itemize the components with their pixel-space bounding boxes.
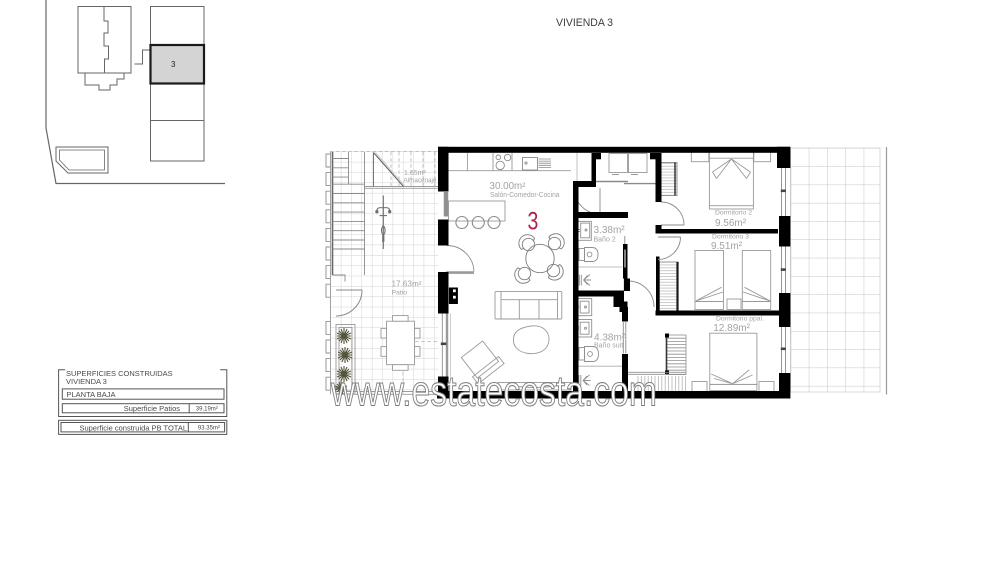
svg-text:3.38m²: 3.38m² (594, 225, 626, 236)
svg-text:Dormitorio 2: Dormitorio 2 (715, 210, 752, 217)
svg-text:9.56m²: 9.56m² (715, 218, 747, 229)
svg-text:Baño suit: Baño suit (594, 343, 623, 350)
svg-text:1.65m²: 1.65m² (404, 170, 426, 177)
svg-text:Dormitorio 3: Dormitorio 3 (712, 234, 749, 241)
svg-text:12.89m²: 12.89m² (713, 323, 750, 334)
svg-text:VIVIENDA 3: VIVIENDA 3 (66, 377, 107, 386)
svg-text:VIVIENDA 3: VIVIENDA 3 (556, 17, 613, 29)
svg-text:3: 3 (528, 207, 539, 235)
svg-text:17.63m²: 17.63m² (392, 280, 422, 289)
svg-text:Almacenaje: Almacenaje (404, 177, 437, 184)
svg-text:PLANTA BAJA: PLANTA BAJA (67, 390, 116, 399)
svg-text:9.51m²: 9.51m² (711, 241, 743, 252)
svg-text:93.35m²: 93.35m² (198, 425, 220, 431)
svg-text:Dormitorio ppal.: Dormitorio ppal. (716, 316, 764, 323)
svg-text:www.estatecosta.com: www.estatecosta.com (330, 369, 657, 416)
svg-text:Patio: Patio (392, 290, 408, 297)
svg-text:39.19m²: 39.19m² (196, 406, 218, 412)
svg-text:3: 3 (171, 60, 176, 69)
svg-text:Superficie construida PB TOTAL: Superficie construida PB TOTAL (79, 423, 187, 432)
svg-text:Salón-Comedor-Cocina: Salón-Comedor-Cocina (490, 190, 560, 199)
svg-text:Superficie Patios: Superficie Patios (124, 404, 181, 413)
svg-text:Baño 2: Baño 2 (594, 237, 616, 244)
